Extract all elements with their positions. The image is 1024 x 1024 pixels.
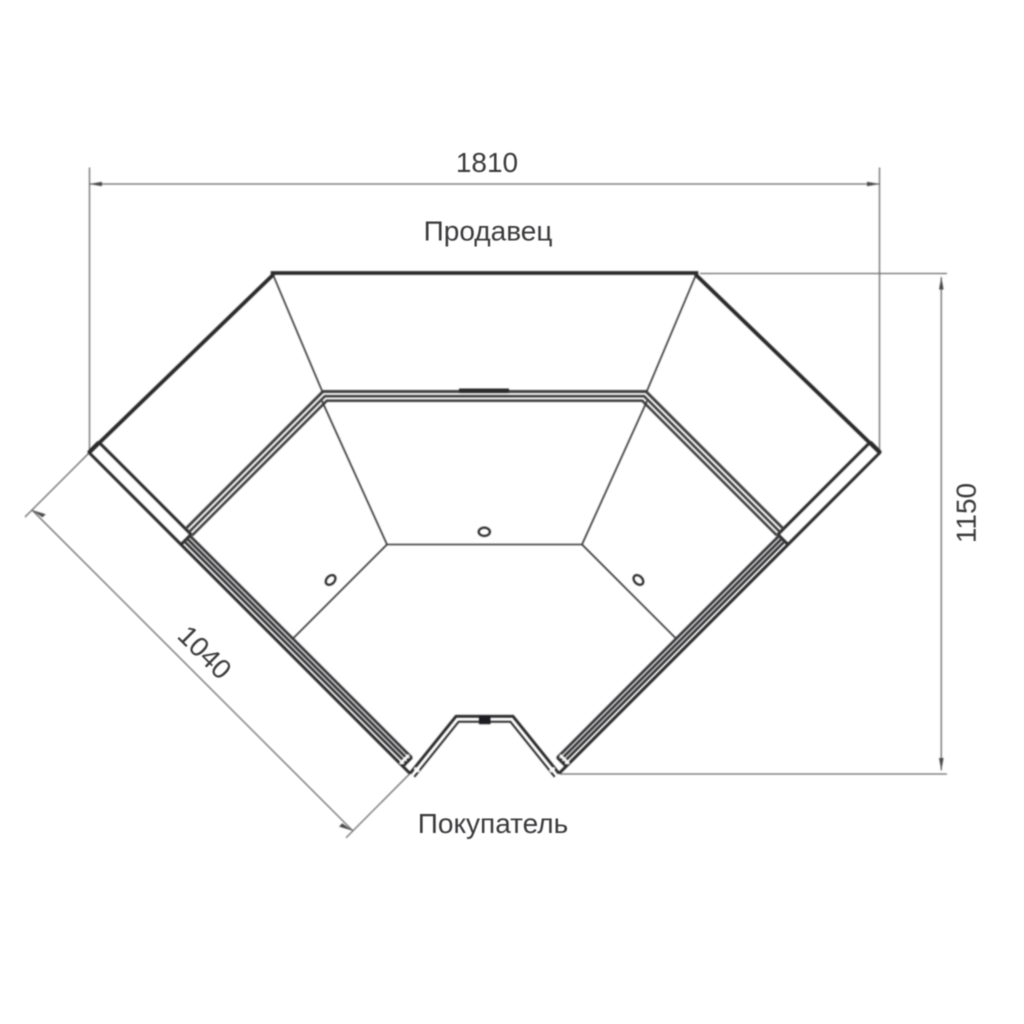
svg-text:Продавец: Продавец bbox=[424, 216, 553, 247]
svg-text:1810: 1810 bbox=[456, 147, 518, 178]
svg-text:1150: 1150 bbox=[951, 483, 982, 543]
svg-text:Покупатель: Покупатель bbox=[418, 808, 568, 839]
